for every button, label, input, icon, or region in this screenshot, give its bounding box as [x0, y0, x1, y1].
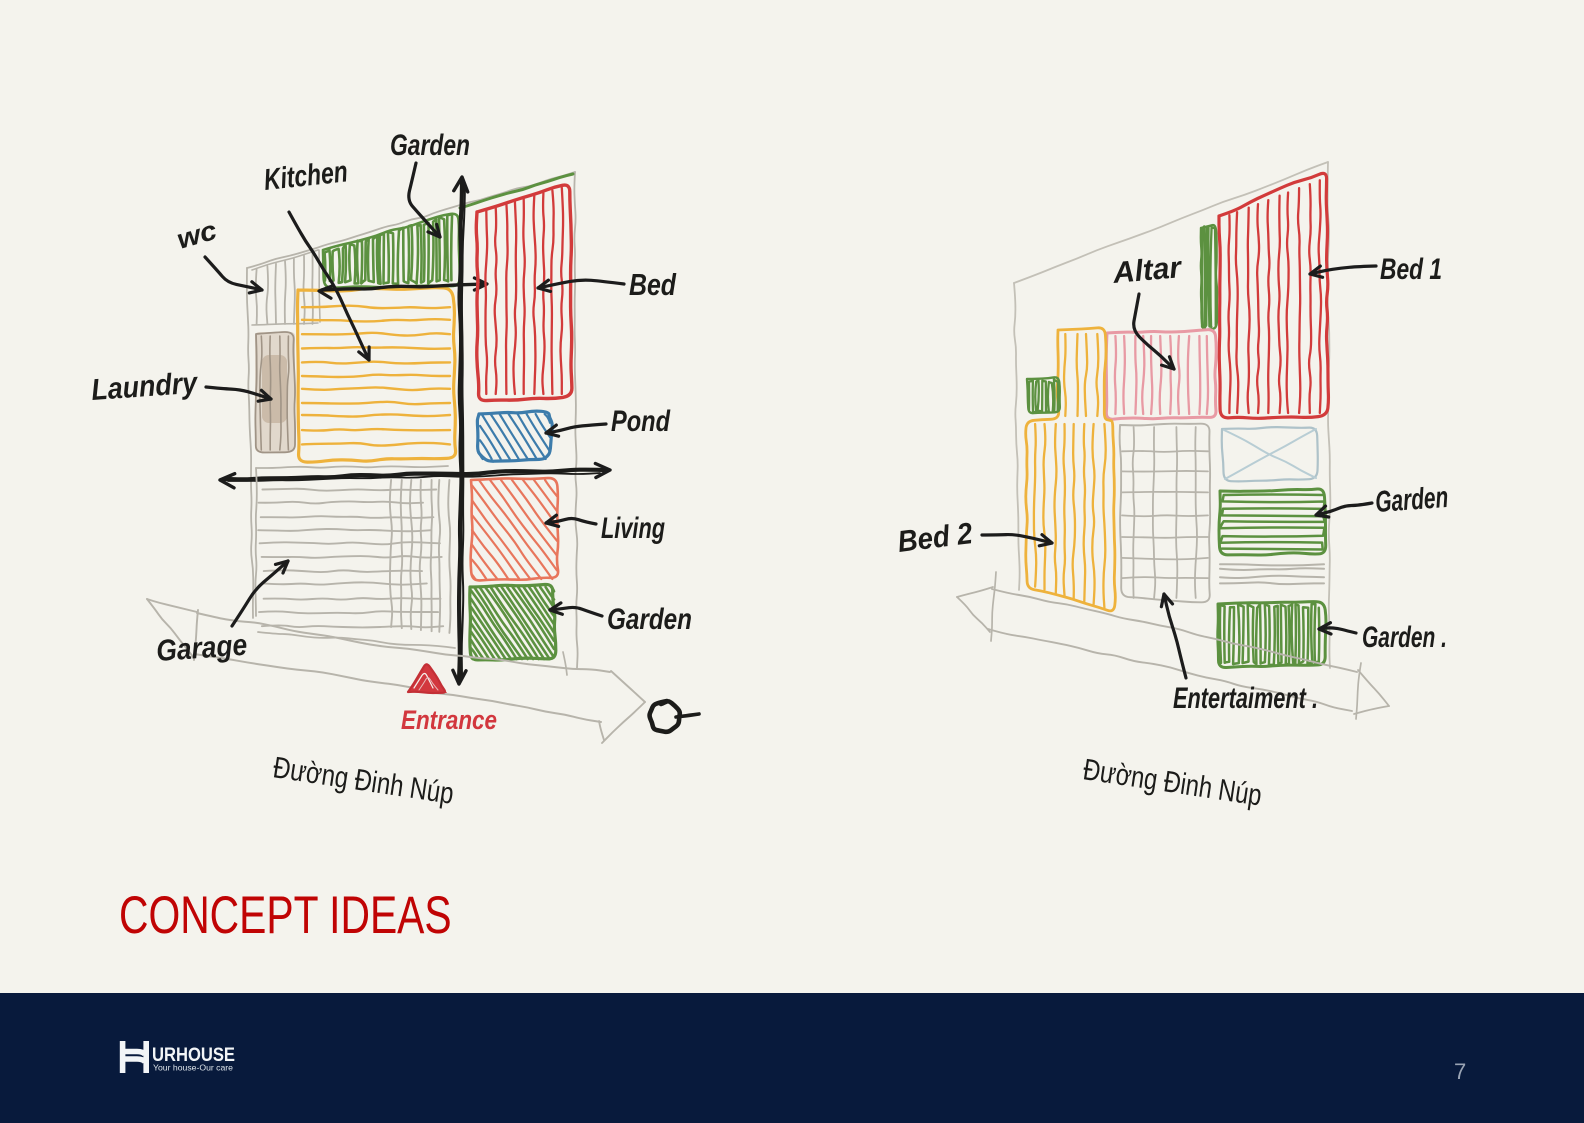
svg-text:wc: wc — [173, 215, 220, 255]
svg-text:Altar: Altar — [1111, 251, 1185, 290]
svg-text:Laundry: Laundry — [90, 367, 199, 407]
svg-text:Bed: Bed — [629, 267, 677, 302]
svg-text:Bed 1: Bed 1 — [1380, 253, 1442, 286]
svg-text:Đường Đinh Núp: Đường Đinh Núp — [271, 751, 456, 811]
svg-text:Entertaiment .: Entertaiment . — [1173, 682, 1318, 715]
svg-text:Garden: Garden — [1374, 481, 1449, 519]
svg-text:Garden: Garden — [390, 129, 470, 162]
svg-text:Garden .: Garden . — [1362, 621, 1447, 654]
svg-text:Bed 2: Bed 2 — [896, 517, 975, 559]
svg-text:Garage: Garage — [155, 629, 248, 668]
svg-text:Kitchen: Kitchen — [262, 155, 349, 197]
svg-text:Living: Living — [601, 512, 665, 545]
svg-text:Pond: Pond — [611, 405, 671, 438]
svg-text:Đường Đinh Núp: Đường Đinh Núp — [1081, 753, 1264, 812]
svg-text:Entrance: Entrance — [401, 705, 497, 735]
svg-text:Garden: Garden — [607, 603, 692, 636]
svg-text:Your house-Our care: Your house-Our care — [153, 1064, 233, 1073]
